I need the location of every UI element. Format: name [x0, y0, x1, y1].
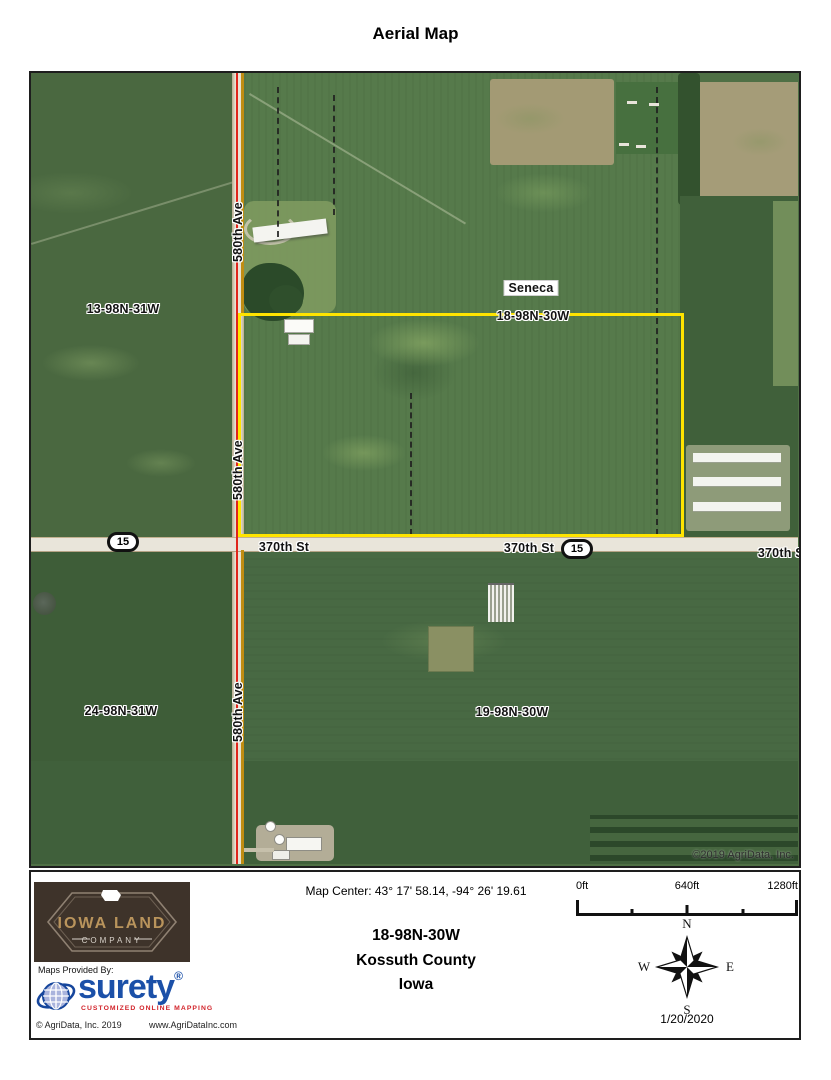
tree-clump: [269, 285, 303, 315]
highway-15-shield: 15: [561, 539, 593, 559]
agridata-website: www.AgriDataInc.com: [149, 1020, 237, 1030]
footer-panel: IOWA LAND COMPANY Maps Provided By: sure…: [29, 870, 801, 1040]
field-object: [636, 145, 646, 148]
township-label: 18-98N-30W: [191, 924, 641, 949]
page: Aerial Map: [0, 0, 831, 1080]
road-label-370th-st: 370th St: [259, 540, 309, 554]
map-copyright: ©2019 AgriData, Inc.: [692, 849, 794, 861]
aerial-photo: 580th Ave 580th Ave 580th Ave 370th St 3…: [31, 73, 799, 866]
scale-label-640ft: 640ft: [675, 880, 699, 892]
surety-tagline: CUSTOMIZED ONLINE MAPPING: [81, 1005, 213, 1012]
location-block: 18-98N-30W Kossuth County Iowa: [191, 924, 641, 998]
scale-labels: 0ft 640ft 1280ft: [576, 880, 798, 894]
farm-building: [272, 850, 290, 860]
compass-e: E: [726, 959, 734, 974]
field-object: [649, 103, 659, 106]
driveway: [244, 848, 274, 852]
iowa-land-company-logo: IOWA LAND COMPANY: [34, 882, 190, 962]
footer-center-column: Map Center: 43° 17' 58.14, -94° 26' 19.6…: [191, 884, 641, 998]
road-label-370th-st: 370th St: [758, 546, 799, 560]
map-center-coordinates: Map Center: 43° 17' 58.14, -94° 26' 19.6…: [191, 884, 641, 898]
state-label: Iowa: [191, 973, 641, 998]
registered-mark: ®: [174, 969, 183, 983]
logo-text-company: COMPANY: [82, 936, 143, 945]
barn-site: [686, 445, 790, 531]
road-label-580th-ave: 580th Ave: [231, 440, 245, 500]
scale-bar: 0ft 640ft 1280ft: [576, 880, 798, 916]
section-label-ne: 18-98N-30W: [497, 309, 570, 323]
pond: [33, 592, 56, 615]
dashed-boundary: [277, 87, 279, 237]
parcel-boundary: [238, 313, 684, 537]
field-object: [627, 101, 637, 104]
surety-wordmark: surety®: [78, 968, 183, 1007]
agridata-copyright: © AgriData, Inc. 2019: [36, 1020, 122, 1030]
road-label-580th-ave: 580th Ave: [231, 202, 245, 262]
page-title: Aerial Map: [0, 24, 831, 44]
barn: [693, 502, 781, 512]
compass-rose-icon: N E S W: [637, 914, 737, 1018]
barn: [693, 453, 781, 463]
county-label: Kossuth County: [191, 949, 641, 974]
field-object: [619, 143, 629, 146]
section-label-se: 19-98N-30W: [476, 705, 549, 719]
grain-bin: [265, 821, 276, 832]
field-patch-tan: [490, 79, 614, 165]
section-label-nw: 13-98N-31W: [87, 302, 160, 316]
scale-label-1280ft: 1280ft: [767, 880, 798, 892]
compass-w: W: [638, 959, 651, 974]
field-patch: [773, 201, 798, 386]
scale-label-0ft: 0ft: [576, 880, 588, 892]
highway-15-shield: 15: [107, 532, 139, 552]
agridata-copyright-row: © AgriData, Inc. 2019 www.AgriDataInc.co…: [36, 1020, 276, 1030]
farm-building: [286, 837, 322, 851]
place-label-seneca: Seneca: [504, 280, 559, 296]
globe-icon: [36, 976, 76, 1016]
grain-bins: [488, 583, 514, 622]
field-patch-tan: [428, 626, 474, 672]
field-patch-tan: [700, 82, 798, 196]
compass-rose: N E S W: [637, 914, 737, 1018]
map-date: 1/20/2020: [637, 1012, 737, 1026]
road-370th-st: [31, 537, 798, 552]
section-line: [241, 73, 244, 315]
grain-bin: [274, 834, 285, 845]
iowa-state-icon: [101, 890, 121, 901]
dashed-boundary: [333, 95, 335, 215]
road-label-370th-st: 370th St: [504, 541, 554, 555]
barn: [693, 477, 781, 487]
section-label-sw: 24-98N-31W: [85, 704, 158, 718]
aerial-map-frame: 580th Ave 580th Ave 580th Ave 370th St 3…: [29, 71, 801, 868]
road-label-580th-ave: 580th Ave: [231, 682, 245, 742]
logo-text-iowa-land: IOWA LAND: [58, 915, 167, 932]
compass-n: N: [682, 916, 692, 931]
tree-line: [678, 73, 700, 205]
